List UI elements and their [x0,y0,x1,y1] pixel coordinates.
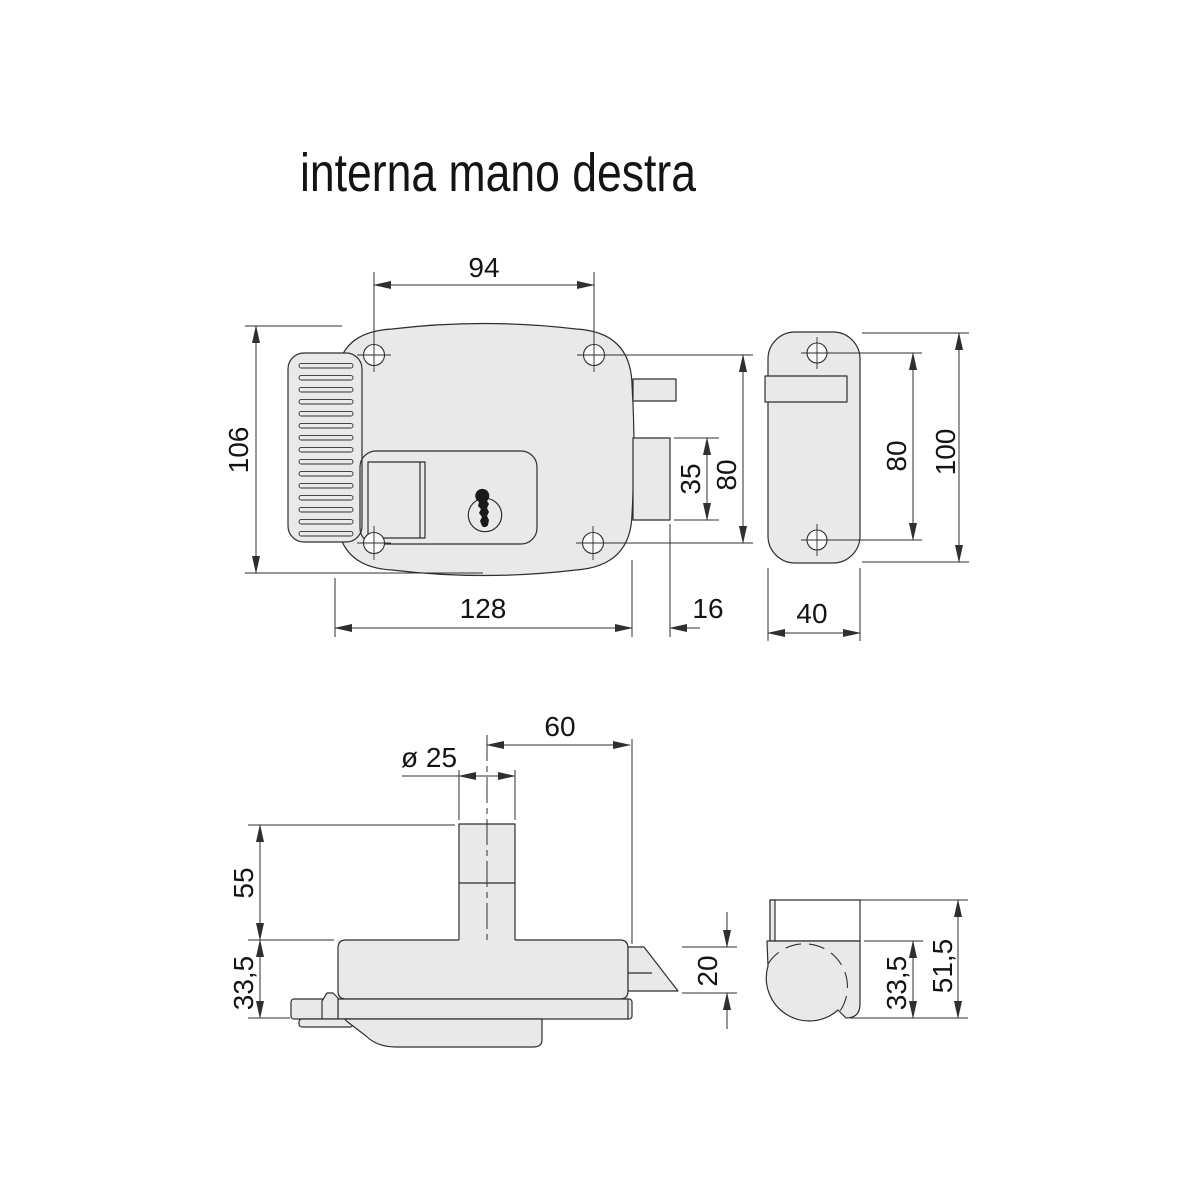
dim-33-5-side: 33,5 [864,941,923,1018]
dim-dia25-label: ø 25 [401,742,457,773]
dim-128-label: 128 [460,593,507,624]
side-bottom-cylinder-housing [766,941,860,1021]
side-latch-slot [765,376,847,402]
dim-60-label: 60 [544,711,575,742]
side-bottom-faceplate-edge [770,900,775,941]
bolt-block [633,438,670,520]
dim-55: 55 [228,825,455,940]
bottom-view: 60 ø 25 55 33,5 20 [228,711,737,1047]
side-body [768,332,860,563]
side-bottom-case [770,900,860,941]
technical-drawing-lock: interna mano destra [0,0,1200,1200]
drawing-title: interna mano destra [300,143,697,203]
dim-33-5-bottom: 33,5 [228,940,290,1018]
front-view: 94 106 128 16 35 [223,252,753,637]
dim-16-label: 16 [692,593,723,624]
bottom-body-fill [338,940,628,999]
face-plate [291,999,632,1019]
dim-20-label: 20 [692,955,723,986]
rear-cover [345,1019,542,1047]
dim-40-label: 40 [796,598,827,629]
dim-106-label: 106 [223,427,254,474]
dim-100-label: 100 [930,429,961,476]
dim-40: 40 [768,568,860,641]
dim-94-label: 94 [468,252,499,283]
dim-55-label: 55 [228,867,259,898]
dim-33-5-bottom-label: 33,5 [228,956,259,1011]
dim-33-5-side-label: 33,5 [881,956,912,1011]
latch-wedge [628,947,678,991]
dim-100: 100 [862,333,969,562]
dim-51-5-label: 51,5 [927,939,958,994]
dim-80-side-label: 80 [881,440,912,471]
dim-35-label: 35 [675,463,706,494]
dim-80-front-label: 80 [711,459,742,490]
plate-tab [299,1019,353,1027]
dim-16: 16 [670,524,724,637]
side-bottom-view: 33,5 51,5 [766,900,968,1021]
dim-20: 20 [682,912,737,1029]
latch-tab [633,379,676,401]
side-view: 80 100 40 [765,332,969,641]
strike-lip [322,993,338,1019]
dim-dia25: ø 25 [401,742,515,820]
